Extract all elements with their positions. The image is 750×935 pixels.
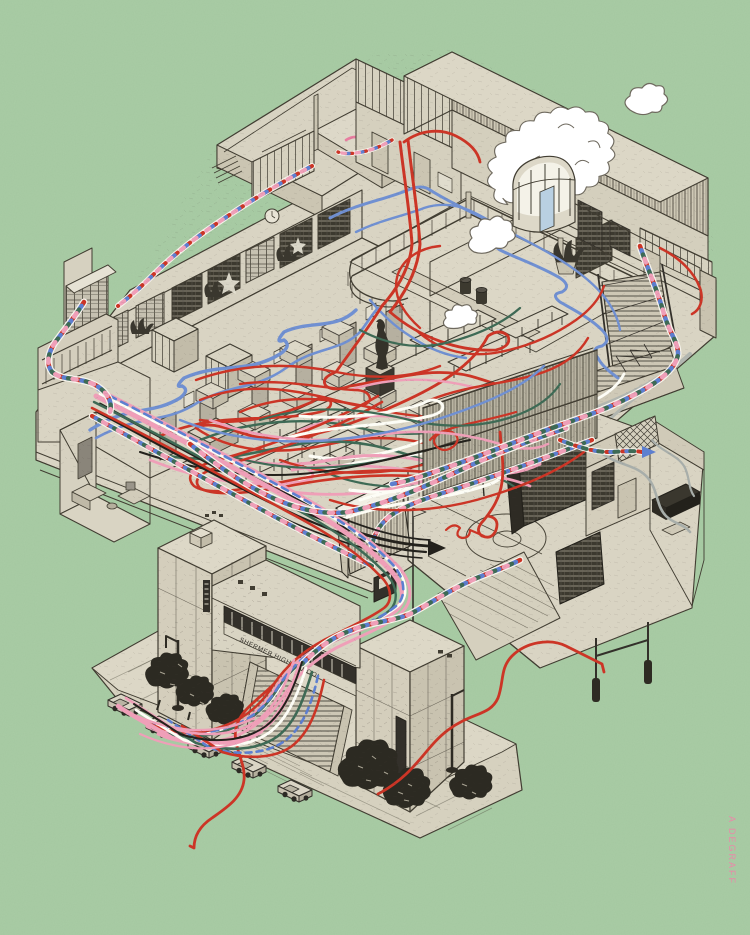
svg-text:A DEGRAFF: A DEGRAFF (727, 816, 737, 885)
